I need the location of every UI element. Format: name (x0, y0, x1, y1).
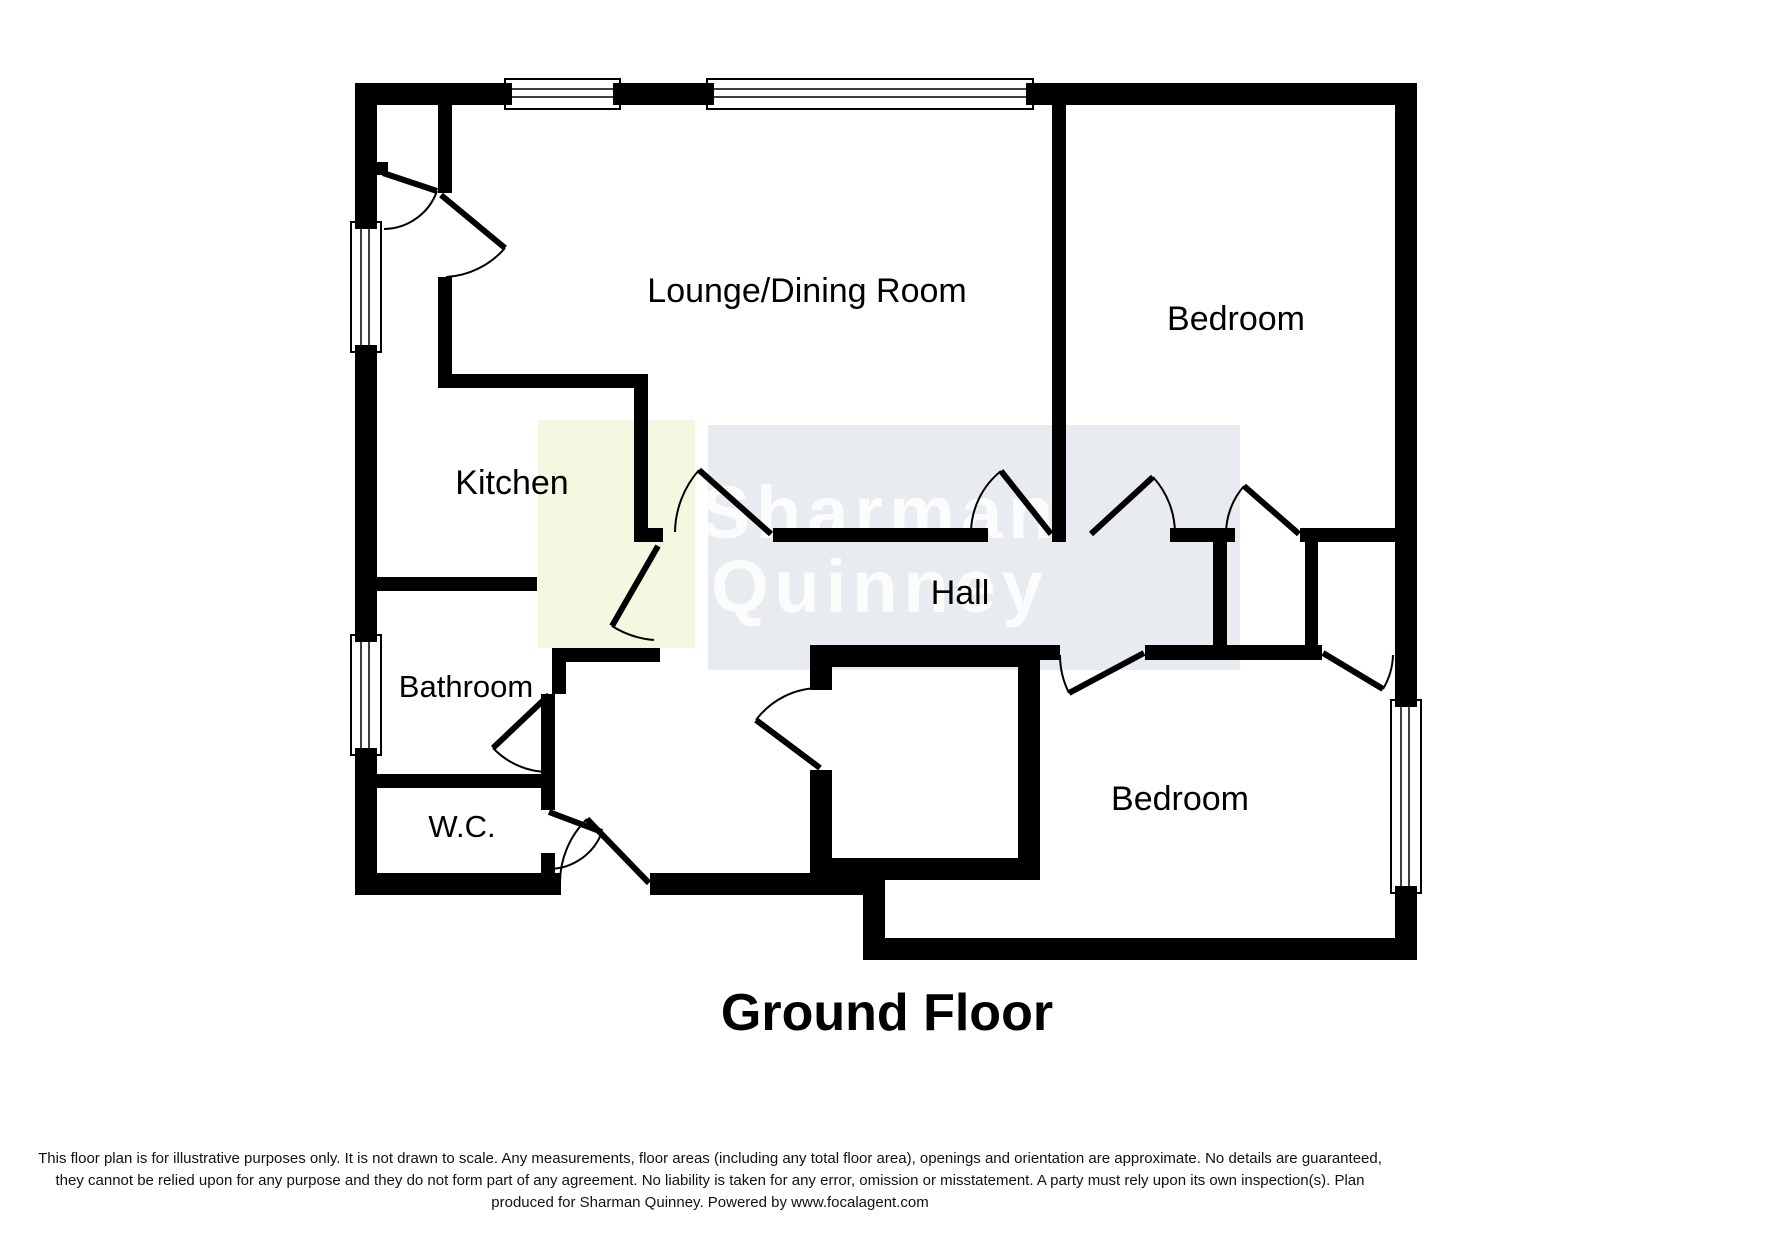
watermark-line2: Quinney (711, 545, 1049, 628)
window-end-cap (355, 222, 377, 229)
door-leaf (1323, 653, 1383, 689)
door-leaf (756, 720, 820, 768)
floor-plan-drawing: Sharman Quinney (0, 0, 1771, 1240)
door-swing-arc (1383, 655, 1393, 689)
window-frame (505, 79, 620, 109)
window-end-cap (613, 83, 620, 105)
disclaimer-line-3: produced for Sharman Quinney. Powered by… (491, 1194, 928, 1211)
wall-bathroom-right (541, 694, 555, 774)
wall-kitchen-step-horizontal (438, 374, 648, 388)
door-bathroom (493, 695, 549, 772)
wall-closet-bottom (810, 858, 1040, 880)
room-label-bathroom: Bathroom (399, 669, 533, 704)
page-title: Ground Floor (721, 984, 1053, 1042)
window-end-cap (1026, 83, 1033, 105)
wall-cupboard-vertical-1 (1213, 542, 1227, 660)
window-top-1 (505, 79, 620, 109)
door-swing-arc (756, 688, 820, 720)
wall-hall-top-stub (634, 528, 663, 542)
wall-kitchen-right (634, 388, 648, 528)
wall-outer-bottom-right (863, 938, 1417, 960)
wall-closet-top (810, 645, 1040, 667)
door-leaf (1244, 486, 1299, 534)
wall-kitchen-bottom (552, 648, 660, 662)
room-label-lounge-dining-room: Lounge/Dining Room (647, 272, 966, 310)
window-end-cap (1395, 700, 1417, 707)
wall-entrance-lower (438, 277, 452, 374)
window-frame (351, 222, 381, 352)
wall-outer-left (355, 83, 377, 895)
wall-bathroom-top (377, 577, 537, 591)
window-frame (1391, 700, 1421, 893)
wall-kitchen-bottom-tick (552, 648, 566, 694)
wall-closet-left-upper (810, 645, 832, 690)
disclaimer: This floor plan is for illustrative purp… (38, 1150, 1382, 1211)
wall-entrance-upper (438, 105, 452, 193)
room-label-hall: Hall (931, 574, 990, 612)
door-entrance-leaf-a (441, 195, 505, 277)
door-swing-arc (446, 248, 505, 277)
wall-hall-top-c (1300, 528, 1395, 542)
door-wc (549, 812, 602, 869)
floor-plan-page: Sharman Quinney (0, 0, 1771, 1240)
window-end-cap (355, 748, 377, 755)
window-end-cap (707, 83, 714, 105)
window-end-cap (1395, 886, 1417, 893)
wall-wc-right-lower (541, 853, 555, 873)
wall-hall-bottom-stub (1040, 645, 1060, 660)
disclaimer-line-1: This floor plan is for illustrative purp… (38, 1150, 1382, 1167)
wall-cupboard-vertical-2 (1305, 542, 1318, 660)
window-frame (707, 79, 1033, 109)
wall-bathroom-bottom (377, 774, 555, 788)
room-label-bedroom-1: Bedroom (1167, 300, 1305, 338)
window-end-cap (505, 83, 512, 105)
wall-closet-right (1018, 645, 1040, 880)
window-right-1 (1391, 700, 1421, 893)
door-swing-arc (384, 191, 437, 229)
window-end-cap (355, 345, 377, 352)
door-cupboard-b (1323, 653, 1393, 689)
wall-lounge-bedroom-divider (1052, 105, 1066, 542)
front-door-opening (561, 871, 650, 897)
disclaimer-line-2: they cannot be relied upon for any purpo… (55, 1172, 1364, 1189)
window-left-2 (351, 635, 381, 755)
room-label-bedroom-2: Bedroom (1111, 780, 1249, 818)
door-closet (756, 688, 820, 768)
door-swing-arc (549, 832, 602, 869)
wall-wc-right-upper (541, 788, 555, 810)
window-end-cap (355, 635, 377, 642)
window-top-2 (707, 79, 1033, 109)
room-label-wc: W.C. (428, 809, 495, 844)
room-label-kitchen: Kitchen (455, 464, 568, 502)
window-left-1 (351, 222, 381, 352)
wall-hall-top-a (773, 528, 988, 542)
door-swing-arc (493, 748, 549, 772)
wall-hall-bottom (1145, 645, 1322, 660)
door-entrance-leaf-b (383, 173, 437, 229)
window-frame (351, 635, 381, 755)
door-leaf (441, 195, 505, 248)
door-leaf (383, 173, 437, 191)
